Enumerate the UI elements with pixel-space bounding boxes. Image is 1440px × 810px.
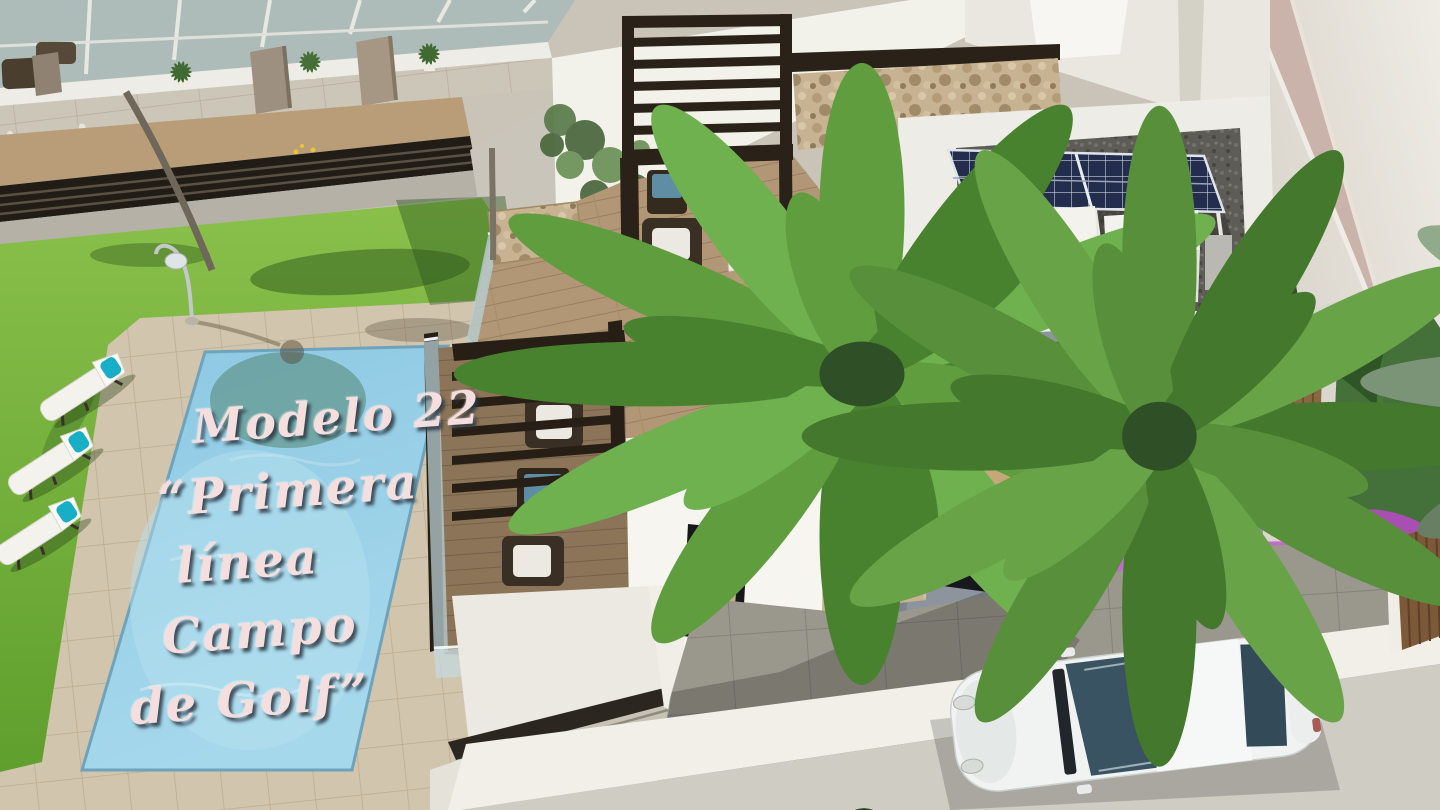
watermark-line: línea: [174, 529, 321, 595]
palm-trunk: [492, 148, 493, 260]
villa-render: Modelo 22 “Primera línea Campo de Golf”: [0, 0, 1440, 810]
palm-shadow: [365, 318, 475, 342]
wicker-armchair: [502, 536, 564, 586]
side-mirror: [1076, 784, 1092, 795]
stone-column: [32, 52, 62, 96]
